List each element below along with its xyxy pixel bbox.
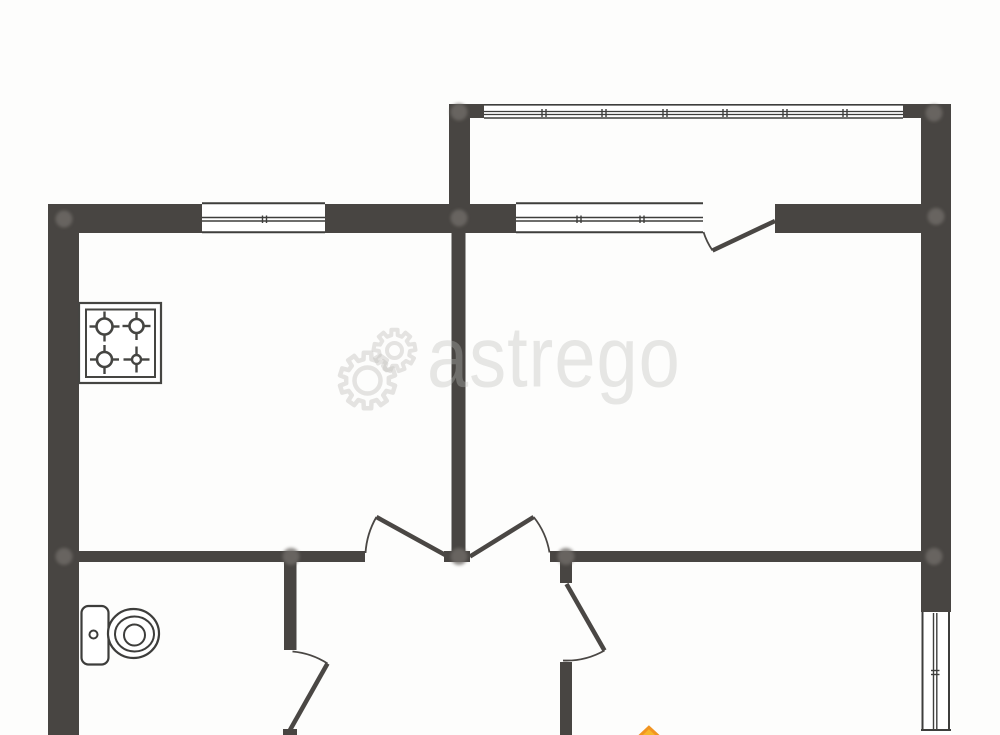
svg-text:astrego: astrego xyxy=(427,309,681,406)
